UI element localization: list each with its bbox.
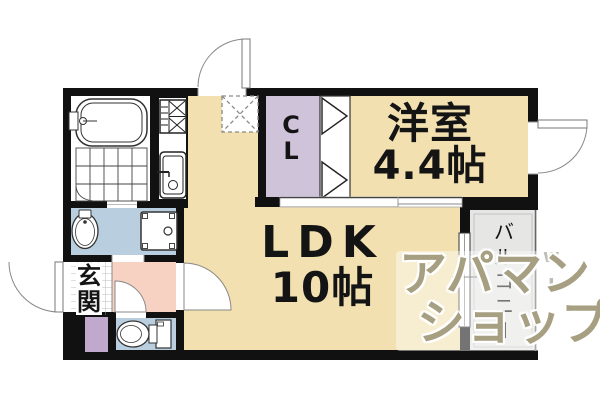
wall-toilet-top [108, 312, 184, 318]
bathroom-floor [71, 96, 150, 201]
ldk-size: 10帖 [225, 266, 420, 310]
wall-washroom-bottom [63, 255, 184, 262]
wall-left [63, 88, 71, 360]
wall-bath-bottom [63, 201, 188, 208]
toilet-floor [116, 318, 176, 350]
closet-char-l: L [279, 138, 303, 164]
entrance-char-2: 関 [76, 289, 102, 315]
balcony-char-1: バ [490, 220, 518, 245]
western-room-door [538, 120, 587, 173]
entrance-char-1: 玄 [76, 263, 102, 289]
wall-balcony-top [462, 197, 538, 210]
washroom-floor [71, 208, 176, 255]
shoe-cabinet [85, 317, 108, 352]
wall-hall-right [176, 201, 184, 352]
hallway-floor [112, 262, 176, 312]
closet-label: C L [279, 112, 303, 164]
kitchen-unit [157, 96, 188, 201]
western-room-size: 4.4帖 [340, 146, 520, 188]
wall-top [63, 88, 538, 96]
western-room-label: 洋室 4.4帖 [340, 102, 520, 187]
watermark-line1: アパマン [399, 250, 590, 298]
watermark-line2: ショップ [417, 299, 600, 347]
wall-stub [255, 197, 280, 207]
wall-ldk-closet [258, 96, 266, 197]
entrance-label: 玄 関 [76, 263, 102, 315]
top-door [198, 39, 250, 88]
ldk-label: LDK 10帖 [225, 220, 420, 309]
wall-window-upper [460, 207, 470, 233]
closet-char-c: C [279, 112, 303, 138]
western-room-name: 洋室 [340, 102, 520, 146]
wall-right [528, 88, 538, 210]
ldk-name: LDK [225, 220, 420, 266]
wall-bath-kitchen [150, 96, 157, 201]
entry-door [9, 262, 63, 312]
floorplan-canvas: 洋室 4.4帖 LDK 10帖 C L バ ル コ ニ ー 玄 関 w L アパ… [0, 0, 600, 400]
